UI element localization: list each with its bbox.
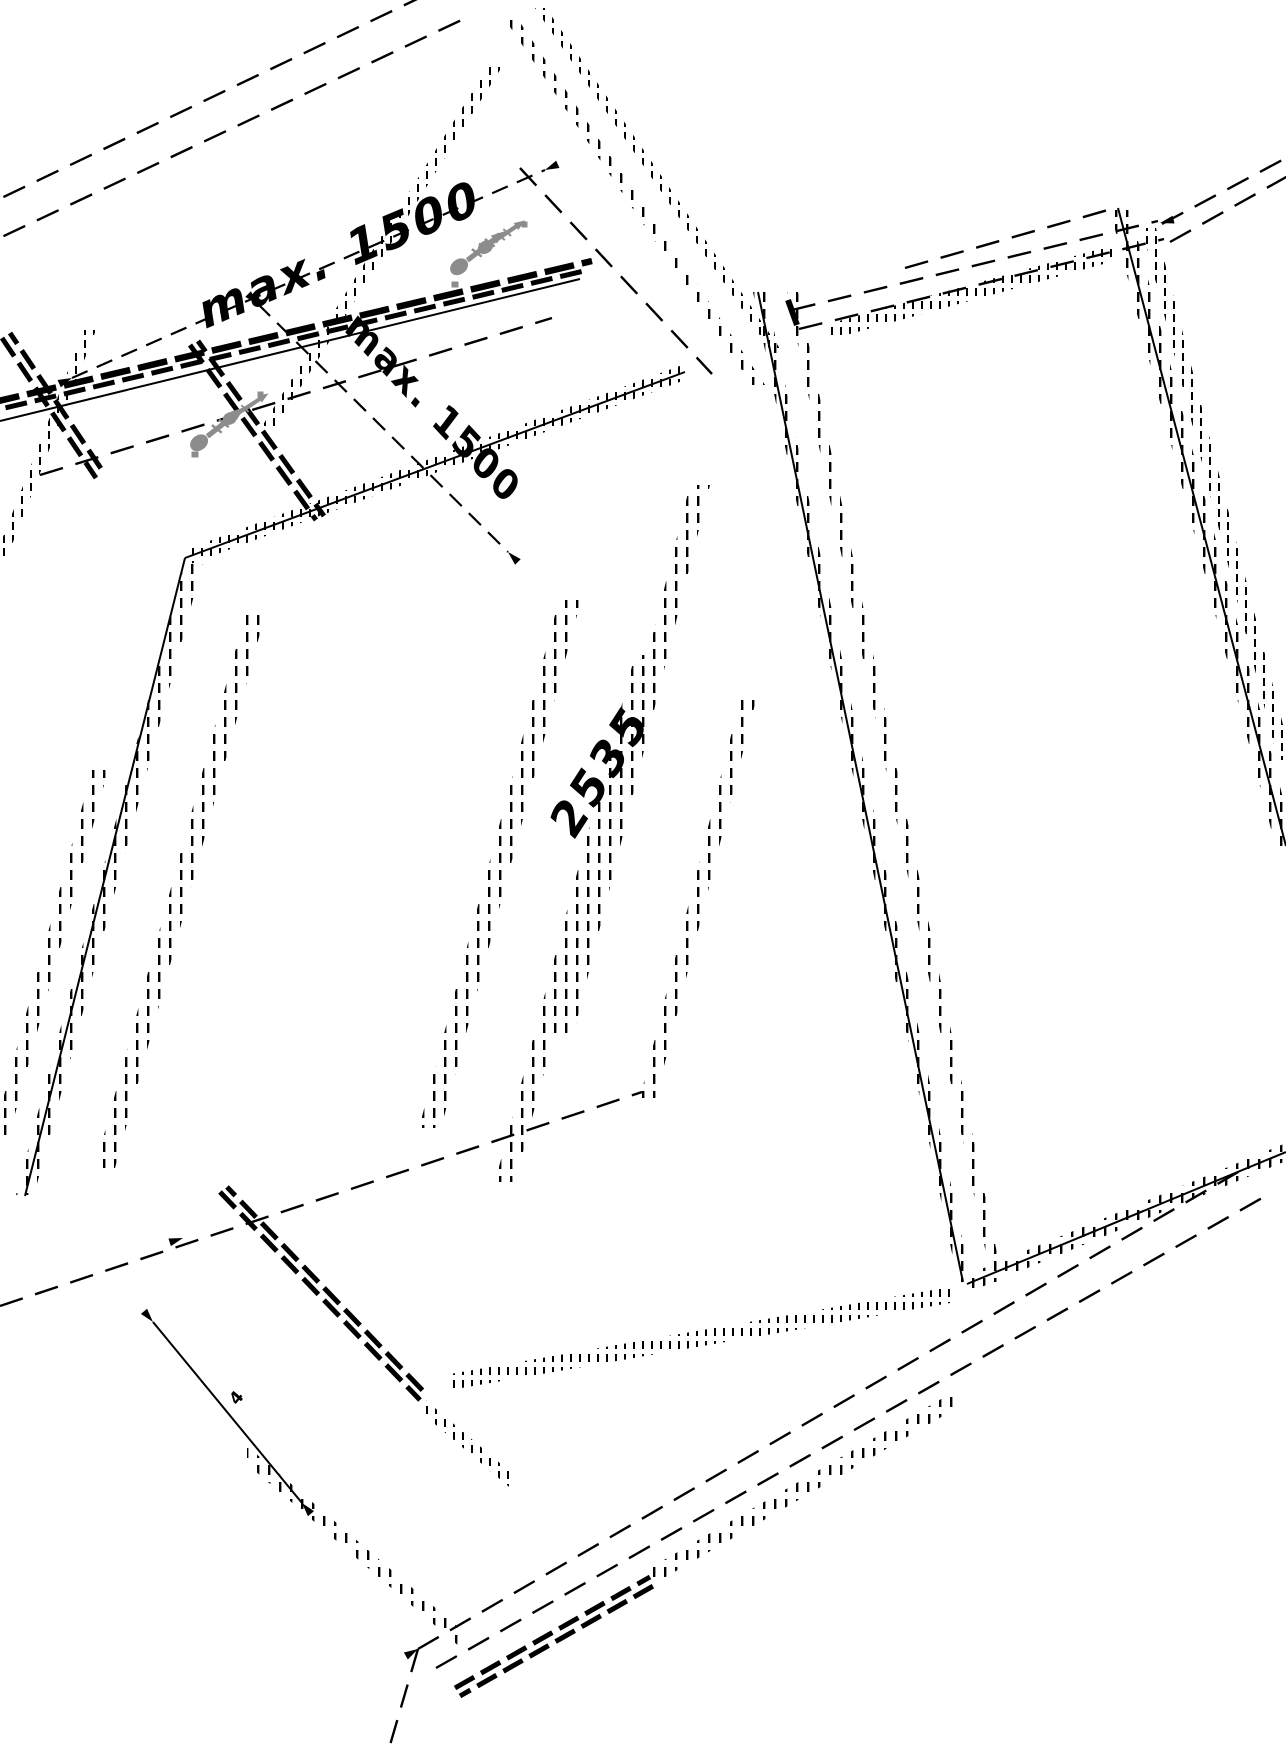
drawing-canvas: max. 1500 max. 1500 2535 4 xyxy=(0,0,1286,1750)
isometric-panel-installation-drawing: max. 1500 max. 1500 2535 4 xyxy=(0,0,1286,1750)
bottom-hidden-edges xyxy=(0,1092,1262,1750)
screw-icon xyxy=(476,217,527,256)
dimension-label-small: 4 xyxy=(226,1387,249,1409)
arrowhead-icon xyxy=(1159,216,1175,227)
dimension-arrowheads xyxy=(58,161,1175,1660)
panel-edge-tick-hatching xyxy=(0,8,1286,1647)
arrowhead-icon xyxy=(543,161,559,174)
top-rail-profile xyxy=(788,157,1286,329)
